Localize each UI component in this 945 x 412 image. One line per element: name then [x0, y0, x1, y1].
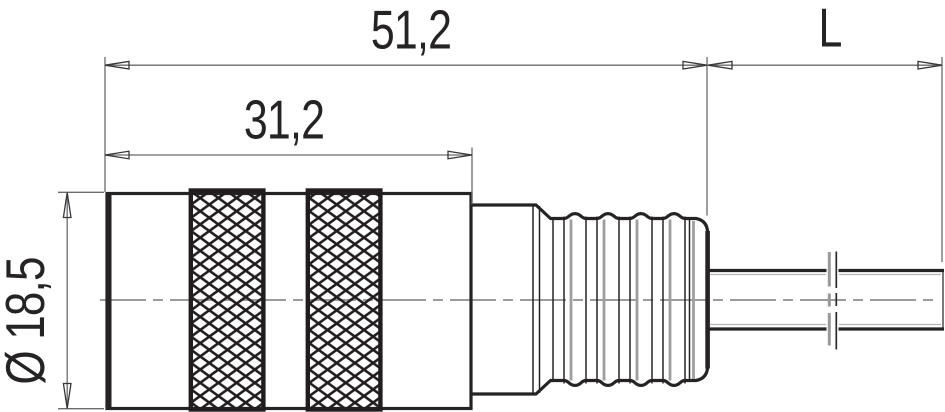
dimension-label-diameter: Ø 18,5 — [0, 257, 56, 384]
dim-overall-length: 51,2 — [105, 0, 707, 69]
knurled-ring-2 — [308, 191, 381, 410]
dim-cable-length: L — [708, 0, 943, 69]
rear-bottom-profile — [471, 367, 708, 394]
front-cylinder-outline — [107, 194, 471, 409]
dim-diameter: Ø 18,5 — [0, 193, 71, 409]
connector-dimension-drawing: 51,2 31,2 L Ø 18,5 — [0, 0, 945, 412]
drawing-canvas: 51,2 31,2 L Ø 18,5 — [0, 0, 945, 412]
rear-top-profile — [471, 205, 708, 232]
dimension-label-front-length: 31,2 — [244, 89, 324, 150]
knurl-band — [191, 191, 264, 410]
dimension-label-overall-length: 51,2 — [371, 0, 451, 61]
dimension-label-cable-length: L — [818, 0, 841, 59]
dim-front-length: 31,2 — [105, 89, 472, 158]
knurl-band — [308, 191, 381, 410]
knurled-ring-1 — [191, 191, 264, 410]
